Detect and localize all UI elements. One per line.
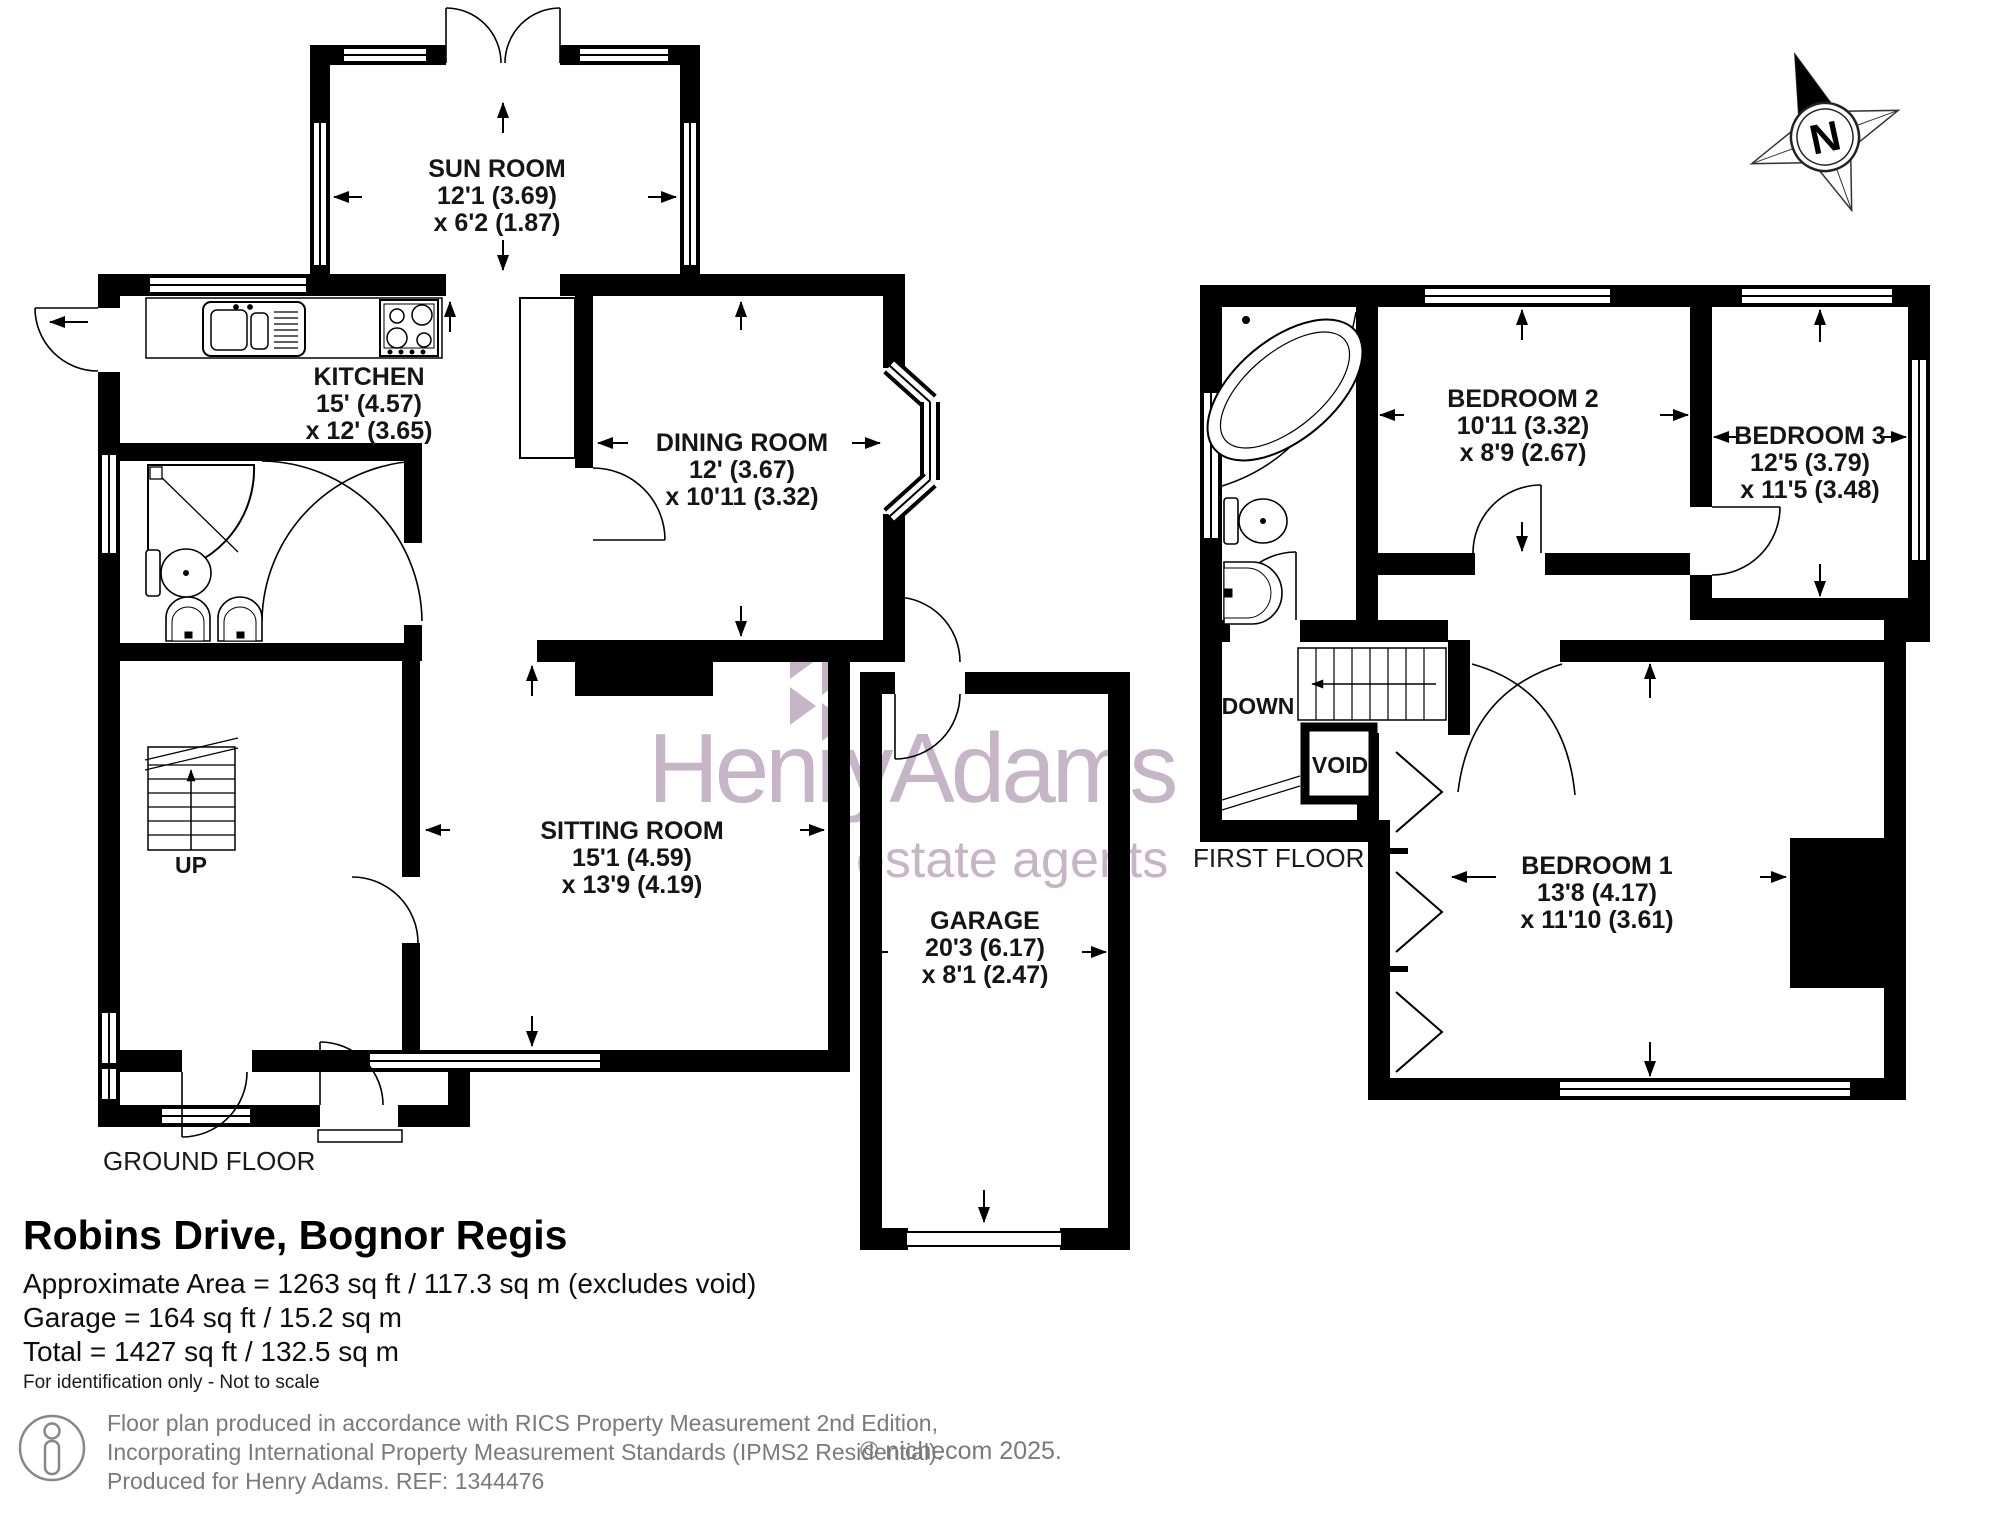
toilet-icon bbox=[1224, 498, 1287, 544]
page-title: Robins Drive, Bognor Regis bbox=[23, 1212, 567, 1259]
footer-copyright: © nichecom 2025. bbox=[860, 1437, 1062, 1466]
room-label-kitchen: KITCHEN 15' (4.57) x 12' (3.65) bbox=[306, 364, 433, 445]
void-label: VOID bbox=[1312, 752, 1368, 779]
room-label-bedroom-3: BEDROOM 3 12'5 (3.79) x 11'5 (3.48) bbox=[1734, 423, 1885, 504]
footer-line-2: Incorporating International Property Mea… bbox=[107, 1439, 943, 1466]
toilet-icon bbox=[146, 549, 211, 597]
person-icon bbox=[20, 1416, 84, 1480]
total-area-line: Total = 1427 sq ft / 132.5 sq m bbox=[23, 1336, 399, 1368]
approx-area-line: Approximate Area = 1263 sq ft / 117.3 sq… bbox=[23, 1268, 756, 1300]
room-label-sitting-room: SITTING ROOM 15'1 (4.59) x 13'9 (4.19) bbox=[540, 818, 723, 899]
first-floor-label: FIRST FLOOR bbox=[1193, 843, 1364, 874]
ground-floor-plan bbox=[35, 8, 1130, 1250]
stairs-up-label: UP bbox=[175, 852, 207, 879]
footer-line-1: Floor plan produced in accordance with R… bbox=[107, 1410, 938, 1437]
floorplan-page: HenryAdams estate agents bbox=[0, 0, 2000, 1521]
basin-icon bbox=[1224, 562, 1282, 624]
footer-line-3: Produced for Henry Adams. REF: 1344476 bbox=[107, 1468, 544, 1495]
ground-floor-label: GROUND FLOOR bbox=[103, 1146, 315, 1177]
basin-icon bbox=[166, 597, 262, 641]
compass-icon: N bbox=[1722, 28, 1925, 237]
room-label-garage: GARAGE 20'3 (6.17) x 8'1 (2.47) bbox=[922, 908, 1049, 989]
room-label-bedroom-2: BEDROOM 2 10'11 (3.32) x 8'9 (2.67) bbox=[1447, 386, 1598, 467]
room-label-bedroom-1: BEDROOM 1 13'8 (4.17) x 11'10 (3.61) bbox=[1520, 853, 1673, 934]
room-label-dining-room: DINING ROOM 12' (3.67) x 10'11 (3.32) bbox=[656, 430, 828, 511]
garage-area-line: Garage = 164 sq ft / 15.2 sq m bbox=[23, 1302, 402, 1334]
kitchen-alcove bbox=[520, 298, 575, 458]
stairs-up bbox=[145, 738, 238, 850]
stairs-down-label: DOWN bbox=[1222, 693, 1295, 720]
wardrobe-icon bbox=[1396, 752, 1442, 1072]
room-label-sun-room: SUN ROOM 12'1 (3.69) x 6'2 (1.87) bbox=[428, 156, 566, 237]
hob-icon bbox=[380, 300, 438, 356]
disclaimer: For identification only - Not to scale bbox=[23, 1372, 320, 1394]
